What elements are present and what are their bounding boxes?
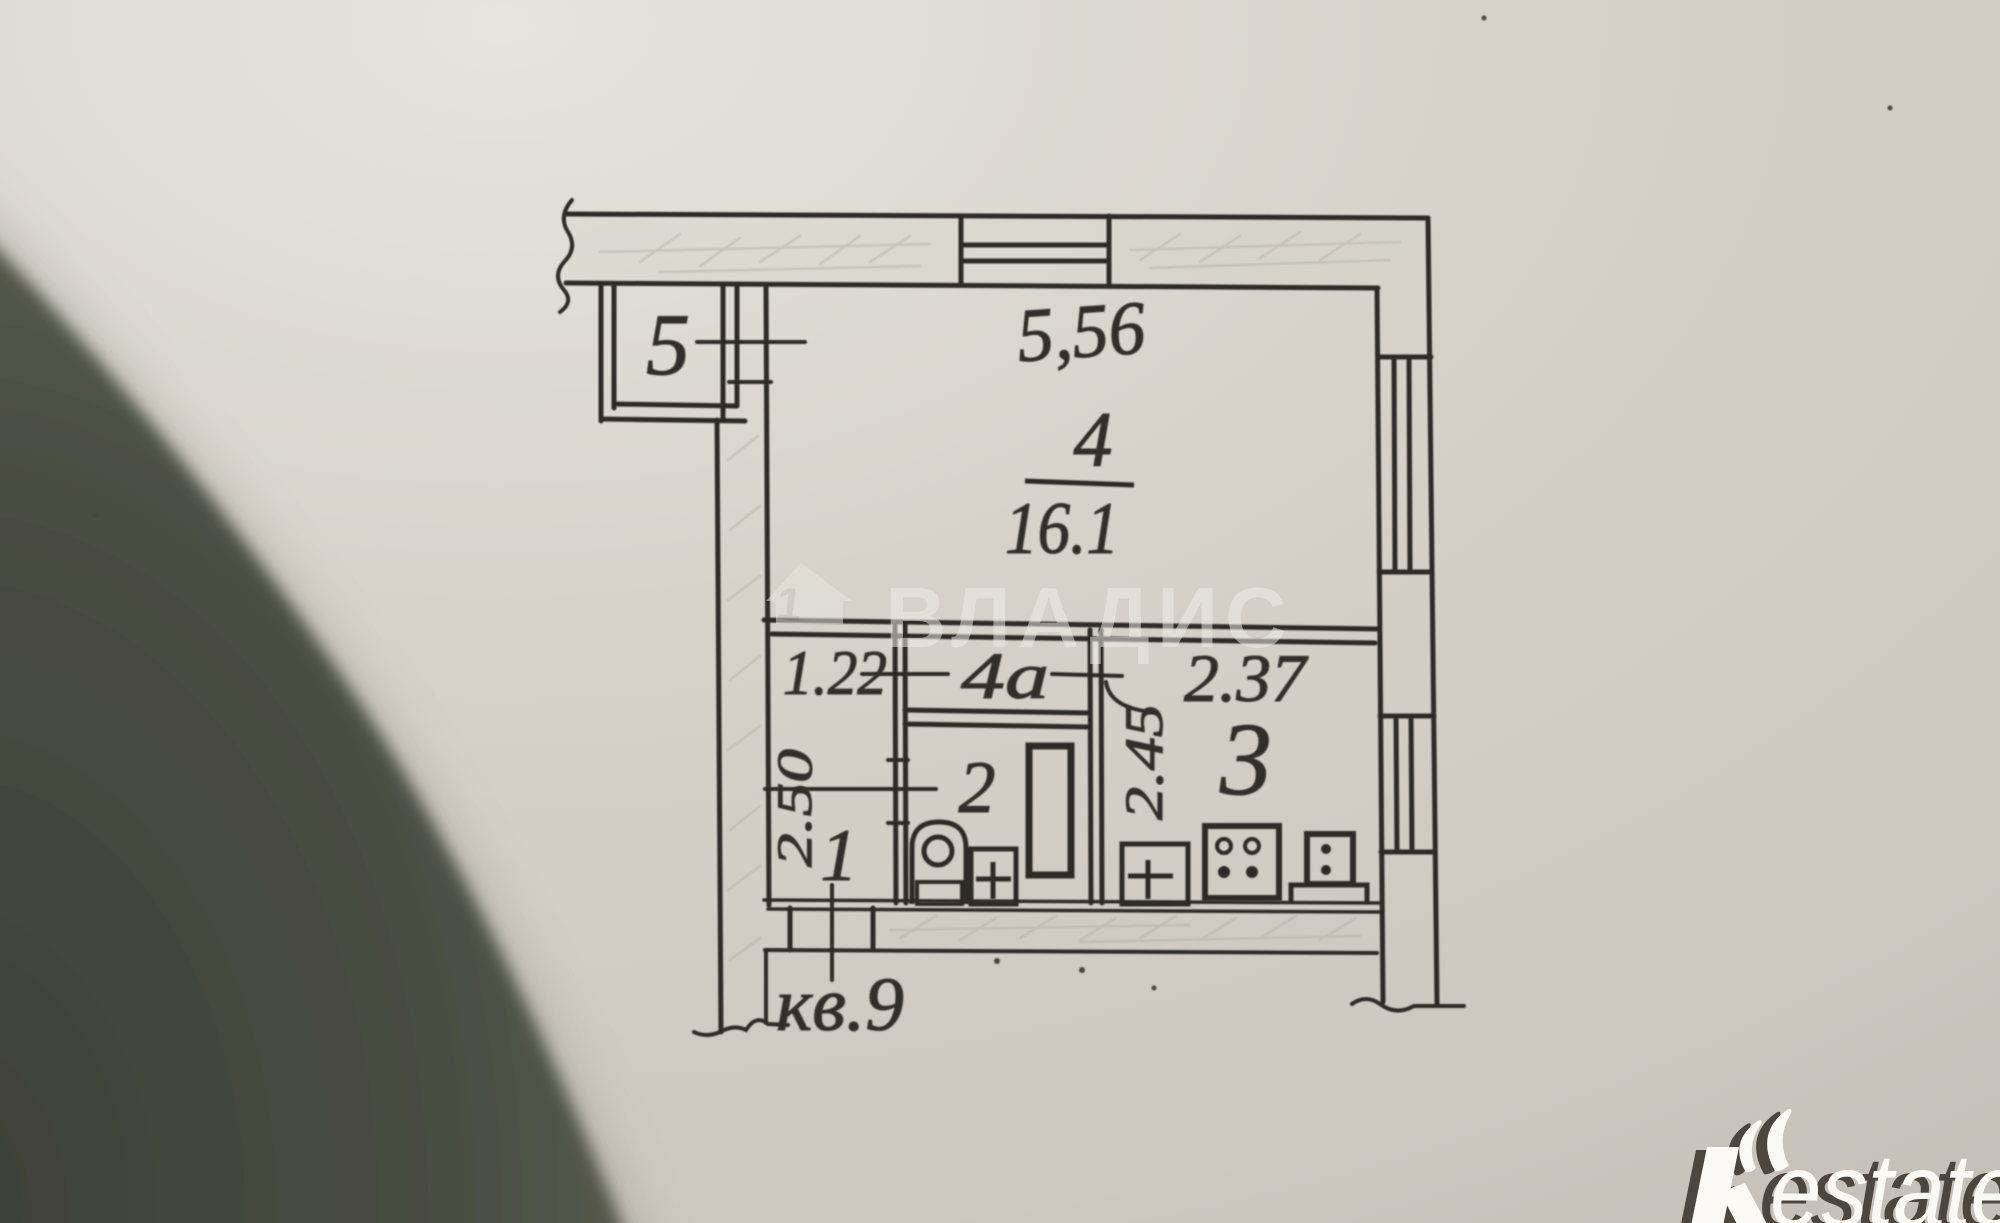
svg-text:2.50: 2.50	[766, 749, 822, 867]
svg-text:2: 2	[959, 747, 996, 829]
svg-text:16.1: 16.1	[1005, 488, 1119, 570]
svg-text:1: 1	[774, 577, 805, 631]
svg-text:3: 3	[1219, 702, 1272, 817]
svg-text:ВЛАДИС: ВЛАДИС	[885, 571, 1293, 666]
svg-text:кв.9: кв.9	[776, 963, 904, 1047]
svg-text:1: 1	[821, 815, 858, 897]
svg-text:2.45: 2.45	[1114, 704, 1174, 820]
svg-text:5,56: 5,56	[1014, 286, 1148, 379]
svg-text:estate: estate	[1770, 1133, 2000, 1223]
svg-text:4: 4	[1074, 396, 1113, 483]
svg-text:1.22: 1.22	[783, 637, 887, 708]
svg-text:5: 5	[646, 297, 690, 394]
